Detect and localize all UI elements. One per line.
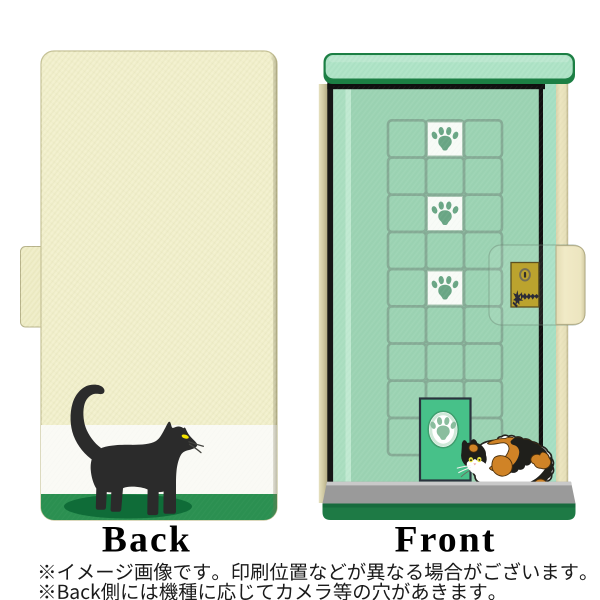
- svg-text:Back: Back: [102, 520, 192, 561]
- svg-text:Front: Front: [395, 520, 497, 561]
